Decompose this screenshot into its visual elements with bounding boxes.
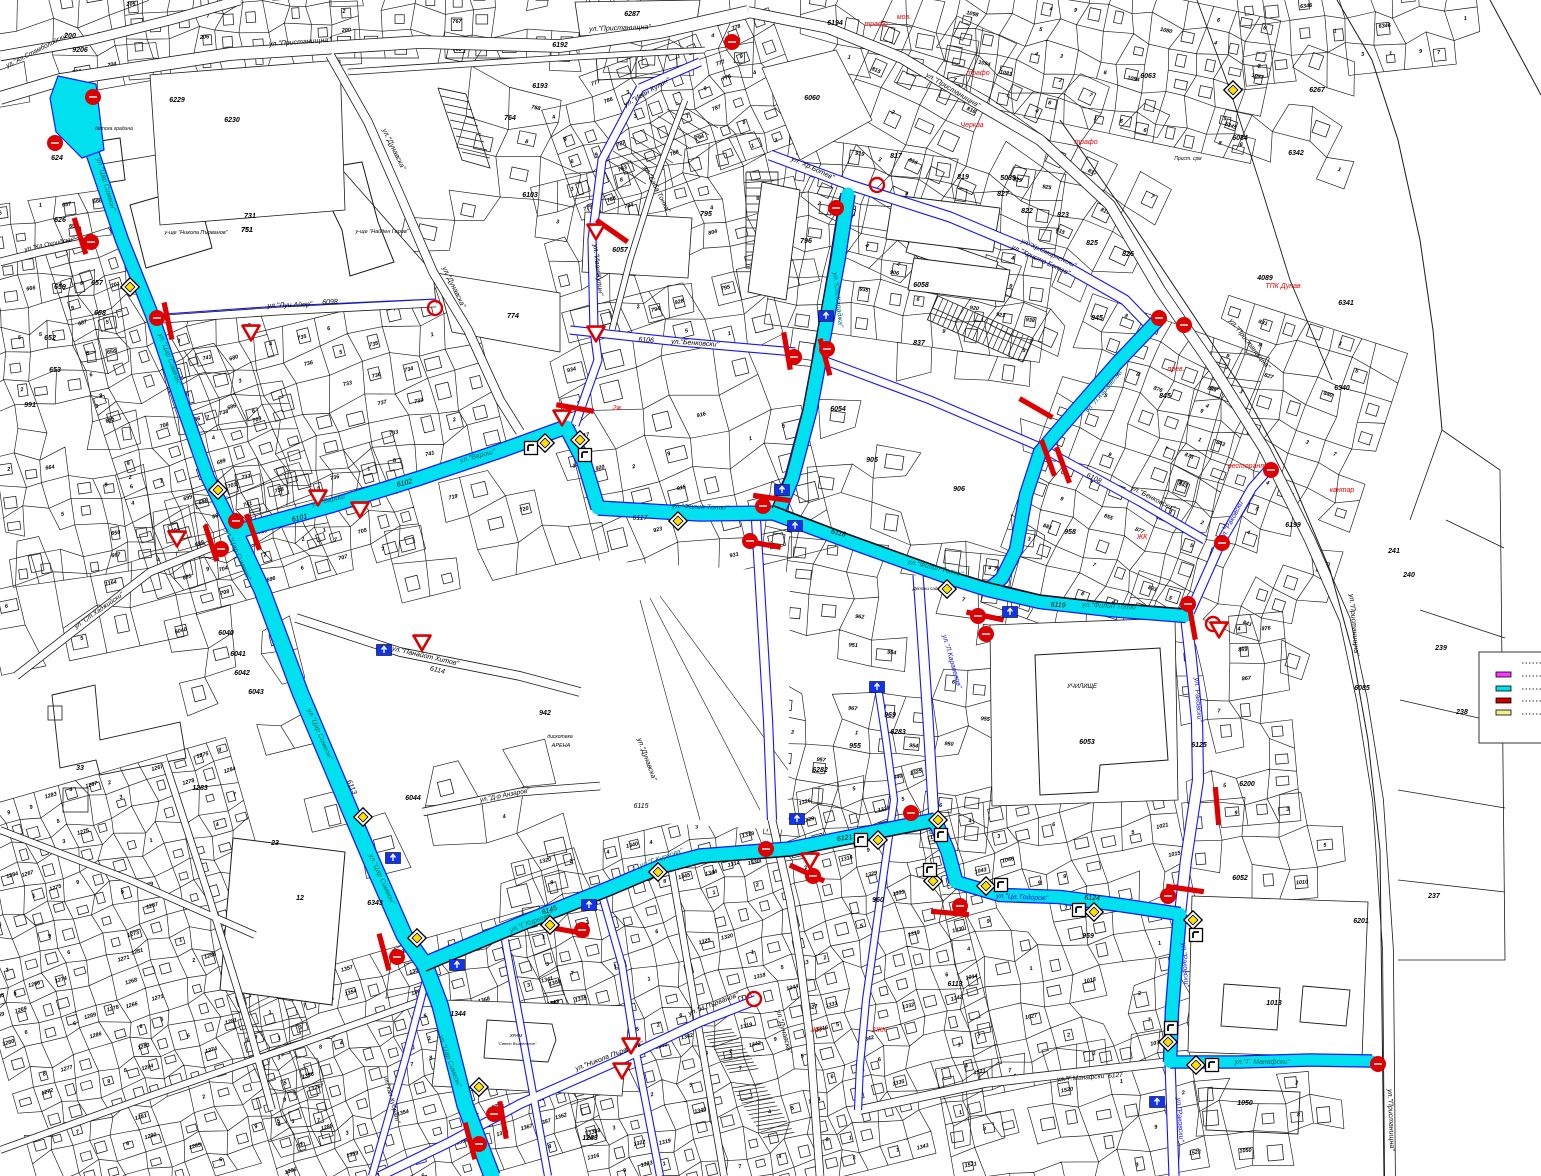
svg-text:прев.: прев. bbox=[1167, 366, 1184, 373]
svg-text:845: 845 bbox=[1159, 393, 1171, 400]
svg-text:1050: 1050 bbox=[1237, 1100, 1253, 1107]
svg-text:23: 23 bbox=[270, 840, 279, 847]
svg-text:241: 241 bbox=[1387, 548, 1400, 555]
svg-text:906: 906 bbox=[953, 486, 965, 493]
svg-text:796: 796 bbox=[800, 238, 812, 245]
svg-text:2: 2 bbox=[341, 9, 345, 15]
svg-text:652: 652 bbox=[44, 335, 56, 342]
svg-text:6342: 6342 bbox=[1288, 150, 1304, 157]
svg-text:959: 959 bbox=[1082, 933, 1094, 940]
svg-text:4: 4 bbox=[1010, 255, 1015, 262]
svg-text:2: 2 bbox=[816, 201, 821, 208]
svg-text:819: 819 bbox=[957, 174, 969, 181]
svg-text:Черква: Черква bbox=[960, 122, 983, 129]
svg-text:ТПК Дунав: ТПК Дунав bbox=[1265, 283, 1301, 290]
svg-text:6042: 6042 bbox=[234, 670, 250, 677]
svg-text:767: 767 bbox=[452, 19, 462, 25]
svg-text:6060: 6060 bbox=[804, 95, 820, 102]
svg-text:659: 659 bbox=[54, 284, 66, 291]
svg-text:1283: 1283 bbox=[192, 785, 208, 792]
svg-text:751: 751 bbox=[241, 227, 253, 234]
svg-text:6058: 6058 bbox=[913, 282, 929, 289]
svg-text:2: 2 bbox=[6, 467, 11, 474]
svg-text:920: 920 bbox=[969, 305, 979, 312]
svg-text:962: 962 bbox=[855, 614, 865, 621]
svg-text:6283: 6283 bbox=[890, 729, 906, 736]
svg-text:657: 657 bbox=[91, 280, 104, 287]
svg-text:774: 774 bbox=[507, 313, 519, 320]
svg-text:240: 240 bbox=[1402, 572, 1415, 579]
svg-text:УЧИЛИЩЕ: УЧИЛИЩЕ bbox=[1066, 684, 1098, 690]
svg-text:954: 954 bbox=[887, 650, 897, 657]
svg-text:967: 967 bbox=[848, 706, 859, 713]
svg-text:876: 876 bbox=[1261, 626, 1272, 633]
svg-text:6054: 6054 bbox=[830, 406, 846, 413]
svg-text:6040: 6040 bbox=[218, 630, 234, 637]
svg-text:кантар: кантар bbox=[1330, 487, 1355, 494]
svg-text:650: 650 bbox=[111, 530, 121, 537]
svg-text:795: 795 bbox=[700, 211, 712, 218]
svg-text:826: 826 bbox=[1122, 251, 1134, 258]
svg-text:6044: 6044 bbox=[405, 795, 421, 802]
svg-text:6113: 6113 bbox=[947, 981, 962, 988]
svg-text:238: 238 bbox=[1455, 709, 1468, 716]
svg-text:6103: 6103 bbox=[522, 192, 538, 199]
svg-text:6229: 6229 bbox=[169, 97, 185, 104]
svg-text:6267: 6267 bbox=[1309, 87, 1326, 94]
svg-text:1013: 1013 bbox=[1266, 1000, 1282, 1007]
svg-text:942: 942 bbox=[539, 710, 551, 717]
svg-text:869: 869 bbox=[1238, 647, 1249, 654]
svg-text:955: 955 bbox=[849, 743, 861, 750]
svg-text:дискотека: дискотека bbox=[547, 734, 572, 740]
svg-text:867: 867 bbox=[1242, 675, 1253, 682]
svg-text:6199: 6199 bbox=[1285, 522, 1301, 529]
svg-text:трафо: трафо bbox=[1074, 139, 1097, 146]
svg-text:6282: 6282 bbox=[812, 767, 828, 774]
svg-text:626: 626 bbox=[54, 217, 66, 224]
svg-text:"Свето Възнесение": "Свето Възнесение" bbox=[498, 1041, 537, 1046]
svg-text:237: 237 bbox=[1427, 893, 1441, 900]
svg-text:ХРАМ: ХРАМ bbox=[509, 1033, 523, 1038]
svg-text:мов.: мов. bbox=[897, 14, 911, 21]
svg-text:6098: 6098 bbox=[322, 299, 338, 307]
svg-text:817: 817 bbox=[890, 153, 903, 160]
svg-text:12: 12 bbox=[296, 895, 304, 902]
svg-text:2ж: 2ж bbox=[612, 405, 623, 412]
svg-text:624: 624 bbox=[51, 155, 63, 162]
svg-text:6041: 6041 bbox=[230, 651, 246, 658]
svg-text:3: 3 bbox=[791, 730, 795, 736]
svg-text:6343: 6343 bbox=[367, 900, 383, 907]
svg-text:9206: 9206 bbox=[72, 47, 88, 54]
svg-text:2: 2 bbox=[1256, 64, 1261, 70]
svg-text:2ЖК: 2ЖК bbox=[871, 1027, 887, 1034]
svg-text:957: 957 bbox=[816, 757, 827, 764]
svg-text:6230: 6230 bbox=[224, 117, 240, 124]
svg-text:4089: 4089 bbox=[1256, 275, 1273, 282]
svg-text:6084: 6084 bbox=[1232, 135, 1248, 142]
svg-text:658: 658 bbox=[94, 310, 106, 317]
svg-text:Прист. срм: Прист. срм bbox=[1174, 156, 1202, 162]
svg-text:206: 206 bbox=[199, 34, 211, 41]
svg-text:6106: 6106 bbox=[638, 336, 654, 344]
svg-text:1: 1 bbox=[454, 0, 457, 2]
svg-text:1344: 1344 bbox=[450, 1011, 466, 1018]
svg-text:4: 4 bbox=[130, 501, 135, 508]
svg-text:1283: 1283 bbox=[582, 1135, 598, 1142]
svg-text:653: 653 bbox=[49, 367, 61, 374]
svg-text:6063: 6063 bbox=[1140, 73, 1156, 80]
svg-text:6124: 6124 bbox=[1084, 895, 1100, 903]
svg-text:6125: 6125 bbox=[1191, 742, 1207, 749]
svg-text:детска градина: детска градина bbox=[95, 126, 133, 132]
svg-text:1: 1 bbox=[855, 730, 859, 736]
svg-text:1: 1 bbox=[1333, 28, 1337, 34]
svg-text:ул."Г. Манафски": ул."Г. Манафски" bbox=[1233, 1059, 1290, 1066]
svg-text:трафо: трафо bbox=[966, 70, 989, 77]
svg-text:6192: 6192 bbox=[552, 42, 568, 49]
svg-text:955: 955 bbox=[980, 716, 991, 723]
svg-text:АРЕНА: АРЕНА bbox=[551, 743, 571, 749]
svg-text:6340: 6340 bbox=[1334, 385, 1350, 392]
svg-text:Детски сад: Детски сад bbox=[912, 586, 938, 591]
svg-text:6115: 6115 bbox=[633, 803, 648, 810]
svg-text:2: 2 bbox=[19, 387, 24, 394]
svg-text:6193: 6193 bbox=[532, 83, 548, 90]
svg-text:1010: 1010 bbox=[1296, 879, 1309, 886]
svg-text:1050: 1050 bbox=[1239, 1148, 1252, 1155]
svg-text:923: 923 bbox=[996, 312, 1006, 319]
svg-text:трафо: трафо bbox=[864, 21, 887, 28]
svg-text:1: 1 bbox=[1389, 51, 1393, 57]
svg-text:ул."Луи Айер": ул."Луи Айер" bbox=[266, 300, 313, 310]
svg-text:6194: 6194 bbox=[827, 20, 843, 27]
svg-text:4: 4 bbox=[710, 33, 714, 39]
svg-text:6085: 6085 bbox=[1354, 685, 1370, 692]
svg-text:991: 991 bbox=[24, 402, 36, 409]
svg-text:у-ще "Найден Геров": у-ще "Найден Геров" bbox=[354, 228, 409, 235]
svg-text:2: 2 bbox=[1294, 1080, 1299, 1086]
svg-text:33: 33 bbox=[76, 765, 84, 772]
svg-text:239: 239 bbox=[1434, 645, 1447, 652]
svg-text:664: 664 bbox=[45, 464, 55, 471]
svg-text:969: 969 bbox=[884, 712, 896, 719]
svg-text:905: 905 bbox=[866, 457, 878, 464]
svg-text:764: 764 bbox=[504, 115, 516, 122]
svg-text:ЖК: ЖК bbox=[810, 1027, 822, 1034]
svg-text:3: 3 bbox=[1361, 52, 1365, 58]
svg-text:845: 845 bbox=[1091, 315, 1103, 322]
svg-text:6287: 6287 bbox=[624, 11, 641, 18]
svg-text:205: 205 bbox=[125, 1, 137, 8]
svg-text:6052: 6052 bbox=[1232, 875, 1248, 882]
svg-text:960: 960 bbox=[872, 897, 884, 904]
svg-text:6200: 6200 bbox=[1239, 781, 1255, 788]
svg-text:6201: 6201 bbox=[1353, 918, 1369, 925]
svg-text:950: 950 bbox=[944, 741, 954, 748]
svg-text:2: 2 bbox=[877, 157, 882, 164]
svg-text:958: 958 bbox=[1064, 529, 1076, 536]
svg-text:6119: 6119 bbox=[1050, 602, 1066, 610]
svg-text:ресторант: ресторант bbox=[1227, 463, 1266, 470]
svg-text:6341: 6341 bbox=[1338, 300, 1354, 307]
svg-text:825: 825 bbox=[1086, 240, 1098, 247]
svg-text:4: 4 bbox=[1236, 626, 1241, 632]
svg-text:6057: 6057 bbox=[612, 247, 629, 254]
svg-text:6053: 6053 bbox=[1079, 739, 1095, 746]
svg-text:954: 954 bbox=[909, 743, 919, 750]
svg-text:5089: 5089 bbox=[1000, 175, 1016, 182]
svg-text:731: 731 bbox=[244, 213, 256, 220]
svg-text:1: 1 bbox=[1464, 16, 1468, 22]
svg-text:6043: 6043 bbox=[248, 689, 264, 696]
svg-text:837: 837 bbox=[913, 340, 926, 347]
svg-text:200: 200 bbox=[63, 33, 76, 40]
svg-text:823: 823 bbox=[1057, 212, 1069, 219]
svg-text:827: 827 bbox=[997, 191, 1010, 198]
svg-text:ЖК: ЖК bbox=[1136, 534, 1148, 541]
svg-text:у-ще "Никола Първанов": у-ще "Никола Първанов" bbox=[163, 230, 228, 236]
svg-text:951: 951 bbox=[848, 642, 858, 649]
svg-text:822: 822 bbox=[1021, 208, 1033, 215]
svg-text:6117: 6117 bbox=[632, 515, 648, 522]
